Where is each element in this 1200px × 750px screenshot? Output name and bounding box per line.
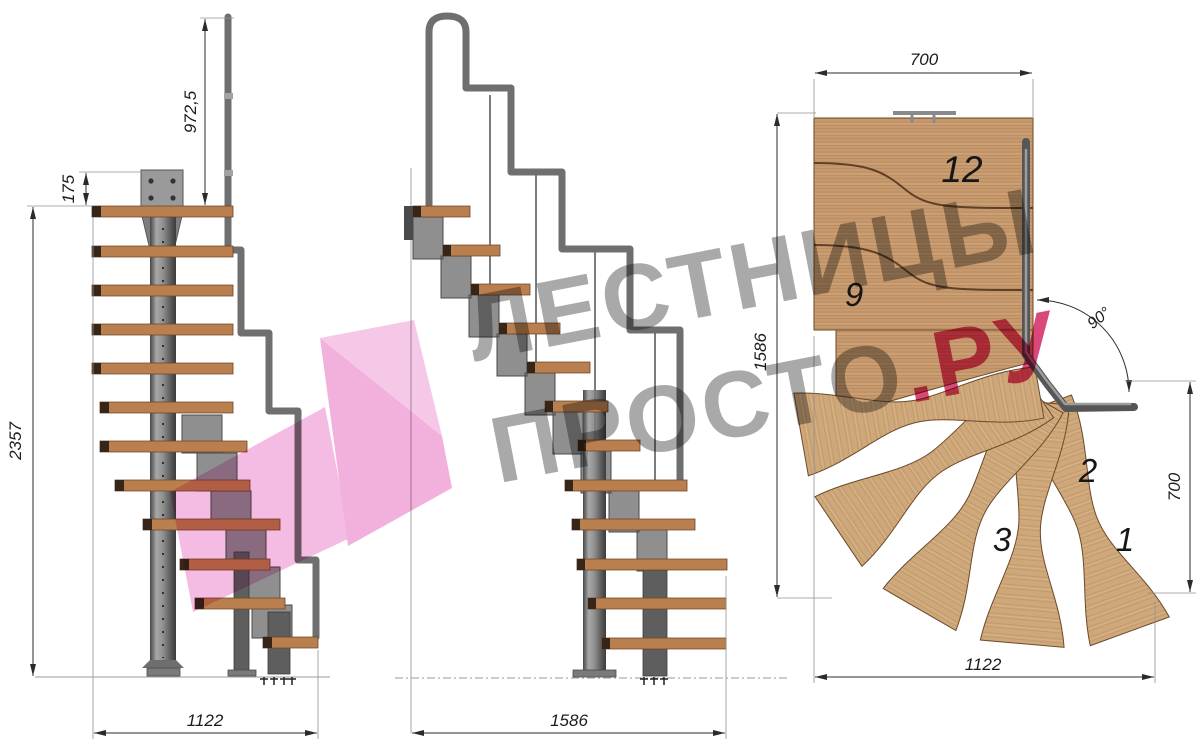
plan-view: 12 9 2 3 1 90° 700 1586 700 1122 <box>751 50 1196 683</box>
column-base-flare <box>142 660 184 668</box>
support-post-side <box>643 570 667 676</box>
dim-plan-width-label: 1122 <box>965 655 1002 674</box>
dim-upper-width-label: 700 <box>910 50 939 69</box>
wall-bracket-side <box>404 206 413 240</box>
step-label-9: 9 <box>845 276 863 313</box>
column-base-plate-side <box>573 670 616 677</box>
dim-lower-depth-label: 700 <box>1165 472 1184 501</box>
rail-joint-2 <box>224 170 233 176</box>
anchor-bolts-side <box>640 677 668 685</box>
turn-angle-label: 90° <box>1084 304 1114 333</box>
post-base-front <box>228 670 256 676</box>
side-elevation-view: 1586 <box>395 16 788 739</box>
handrail-plan-highlight <box>1026 150 1130 404</box>
drawing-layer: 972,5 175 2357 1122 <box>0 0 1200 750</box>
step-label-3: 3 <box>993 521 1012 558</box>
turn-angle-arc <box>1037 300 1129 392</box>
dim-flight-width-label: 1122 <box>187 711 224 730</box>
rail-joint-1 <box>224 93 233 99</box>
staircase-technical-drawing: 972,5 175 2357 1122 <box>0 0 1200 750</box>
step-label-1: 1 <box>1116 521 1134 558</box>
dim-total-run-label: 1586 <box>550 711 588 730</box>
step-label-2: 2 <box>1078 452 1097 489</box>
column-base-plate-front <box>147 668 180 676</box>
dim-total-depth-label: 1586 <box>751 333 770 371</box>
dim-top-mount-label: 175 <box>59 174 78 203</box>
anchor-bolts-front <box>260 677 296 685</box>
step-label-12: 12 <box>941 149 983 190</box>
dim-total-height-label: 2357 <box>6 422 25 461</box>
wall-mount-plate <box>141 170 183 210</box>
dim-handrail-height-label: 972,5 <box>181 90 200 133</box>
front-elevation-view: 972,5 175 2357 1122 <box>6 17 330 739</box>
handrail-plan <box>1026 142 1134 408</box>
